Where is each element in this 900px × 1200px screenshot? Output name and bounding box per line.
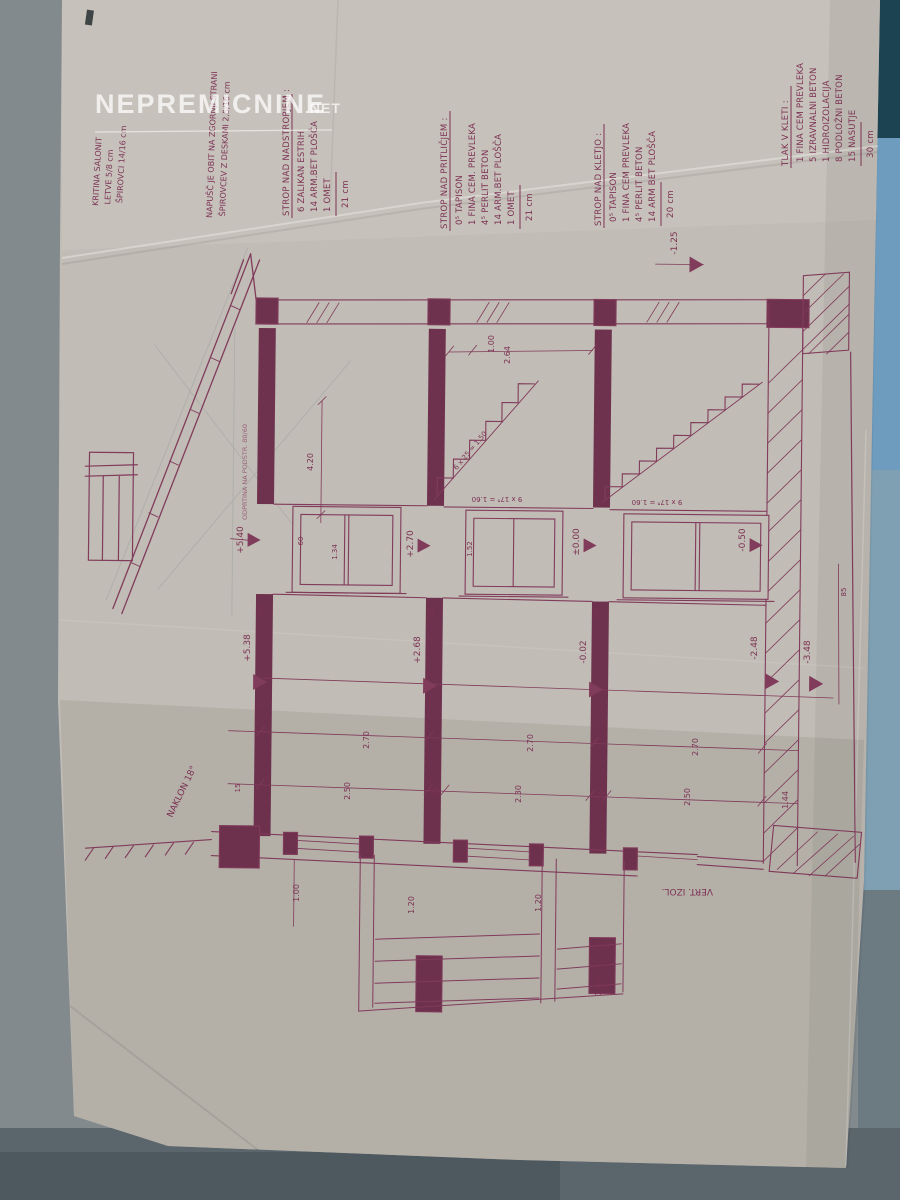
note-line: 14 ARM.BET PLOŠČA: [492, 134, 504, 225]
note-line: 1 OMET: [323, 177, 333, 212]
elev-floor-basement: -2.48: [750, 636, 760, 660]
elev-sill-attic: +5.40: [236, 526, 246, 554]
note-total: 30 cm: [866, 130, 876, 158]
stair-pier-1: [416, 956, 443, 1012]
note-title: STROP NAD PRITLIČJEM :: [438, 117, 450, 229]
window-band: [273, 504, 775, 605]
label-vert-izol: VERT. IZOL.: [662, 886, 713, 896]
dim-top-b: 2.64: [503, 346, 512, 364]
label-odprtina: ODPRTINA NA PODSTR. 80/60: [241, 424, 249, 520]
dim-clear-3: 2.50: [683, 788, 692, 806]
note-total: 20 cm: [666, 190, 676, 218]
watermark-name: NEPREMICNINE: [95, 89, 326, 119]
note-line: 1 HIDROIZOLACIJA: [822, 80, 832, 162]
note-line: 4⁵ PERLIT BETON: [481, 150, 491, 226]
note-title: TLAK V KLETI :: [781, 100, 791, 167]
dim-stair-a: 1.00: [292, 884, 301, 902]
elev-foundation: -3.48: [803, 640, 813, 664]
footing-left: [219, 826, 259, 868]
note-line: 0⁵ TAPISON: [609, 172, 619, 222]
dim-sill-h: 60: [297, 537, 305, 546]
window-1: [286, 506, 407, 593]
note-line: 0⁵ TAPISON: [455, 175, 465, 225]
elev-floor-first: +2.68: [413, 636, 423, 664]
dim-wall-t: 85: [840, 588, 848, 597]
watermark-tld: .NET: [305, 100, 341, 116]
elev-terrain: -1.25: [670, 231, 680, 254]
dim-slab-a: 20: [257, 606, 265, 615]
label-stair-calc-a: 9 x 17⁸ = 1.60: [472, 495, 523, 503]
window-3: [617, 514, 775, 602]
note-line: 1 FINA CEM PREVLEKA: [622, 123, 632, 222]
note-line: 6 ZALIKAN ESTRIH: [297, 131, 307, 212]
note-line: 5 IZRAVNALNI BETON: [809, 67, 819, 162]
note-line: 14 ARM.BET PLOŠČA: [308, 121, 320, 212]
note-total: 21 cm: [525, 193, 535, 221]
dim-win-h1: 1.34: [331, 544, 339, 560]
elev-sill-ground: ±0.00: [572, 528, 582, 556]
dim-slab-b: 20: [427, 608, 435, 617]
dim-clear-2: 2.30: [514, 785, 523, 803]
note-total: 21 cm: [341, 180, 351, 208]
note-line: 4⁵ PERLIT BETON: [635, 147, 645, 223]
elev-sill-basement: -0.50: [738, 528, 748, 552]
elev-sill-first: +2.70: [406, 530, 416, 558]
dim-base-t: 15: [234, 784, 242, 793]
dim-slab-e: 20: [598, 791, 606, 800]
note-line: 14 ARM BET PLOŠČA: [646, 131, 658, 222]
window-2: [459, 510, 569, 597]
note-line: 8 PODLOŽNI BETON: [833, 74, 845, 162]
dim-story-1: 2.70: [362, 731, 371, 749]
blueprint-photo: +5.40 +2.70 ±0.00 -0.50 +5.38 +2.68 -0.0…: [0, 0, 900, 1200]
note-line: 1 FINA CEM. PREVLEKA: [468, 123, 478, 225]
dim-slab-c: 20: [593, 610, 601, 619]
dim-roof-run: 4.20: [306, 453, 315, 471]
photo-of-blueprint: +5.40 +2.70 ±0.00 -0.50 +5.38 +2.68 -0.0…: [0, 0, 900, 1200]
dim-win-h2: 1.52: [466, 541, 474, 557]
dim-story-3: 2.70: [691, 738, 700, 756]
note-line: 1 OMET: [507, 190, 517, 225]
elev-floor-ground: -0.02: [579, 640, 589, 663]
elev-floor-attic: +5.38: [243, 634, 253, 662]
dim-slab-d: 20: [432, 788, 440, 797]
dim-found-h: 1.44: [781, 791, 790, 809]
dim-stair-b: 1.20: [407, 896, 416, 914]
note-line: 15 NASUTJE: [848, 110, 858, 162]
label-stair-calc-b: 9 x 17⁸ = 1.60: [632, 498, 683, 506]
note-line: 1 FINA CEM PREVLEKA: [796, 63, 806, 162]
dim-stair-c: 1.20: [534, 894, 543, 912]
dim-top-a: 1.00: [487, 335, 496, 353]
dim-stair-d: 1.00: [594, 978, 603, 996]
dim-story-2: 2.70: [526, 734, 535, 752]
dim-clear-1: 2.50: [343, 782, 352, 800]
note-title: STROP NAD KLETJO :: [594, 133, 604, 226]
